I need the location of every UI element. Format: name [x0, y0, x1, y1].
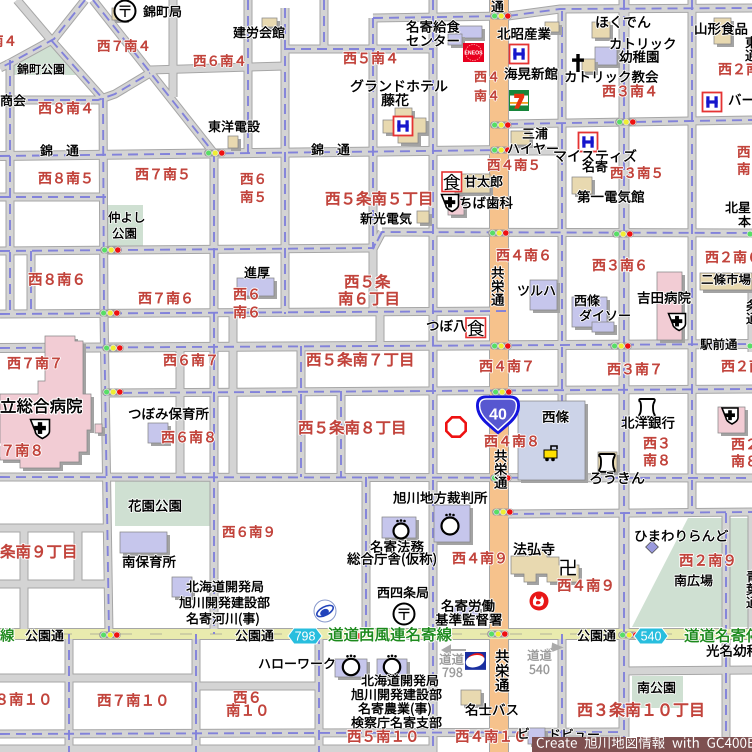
svg-text:798: 798 — [295, 630, 316, 644]
svg-text:ENEOS: ENEOS — [464, 50, 483, 56]
svg-text:540: 540 — [641, 630, 662, 644]
svg-text:40: 40 — [489, 407, 507, 424]
